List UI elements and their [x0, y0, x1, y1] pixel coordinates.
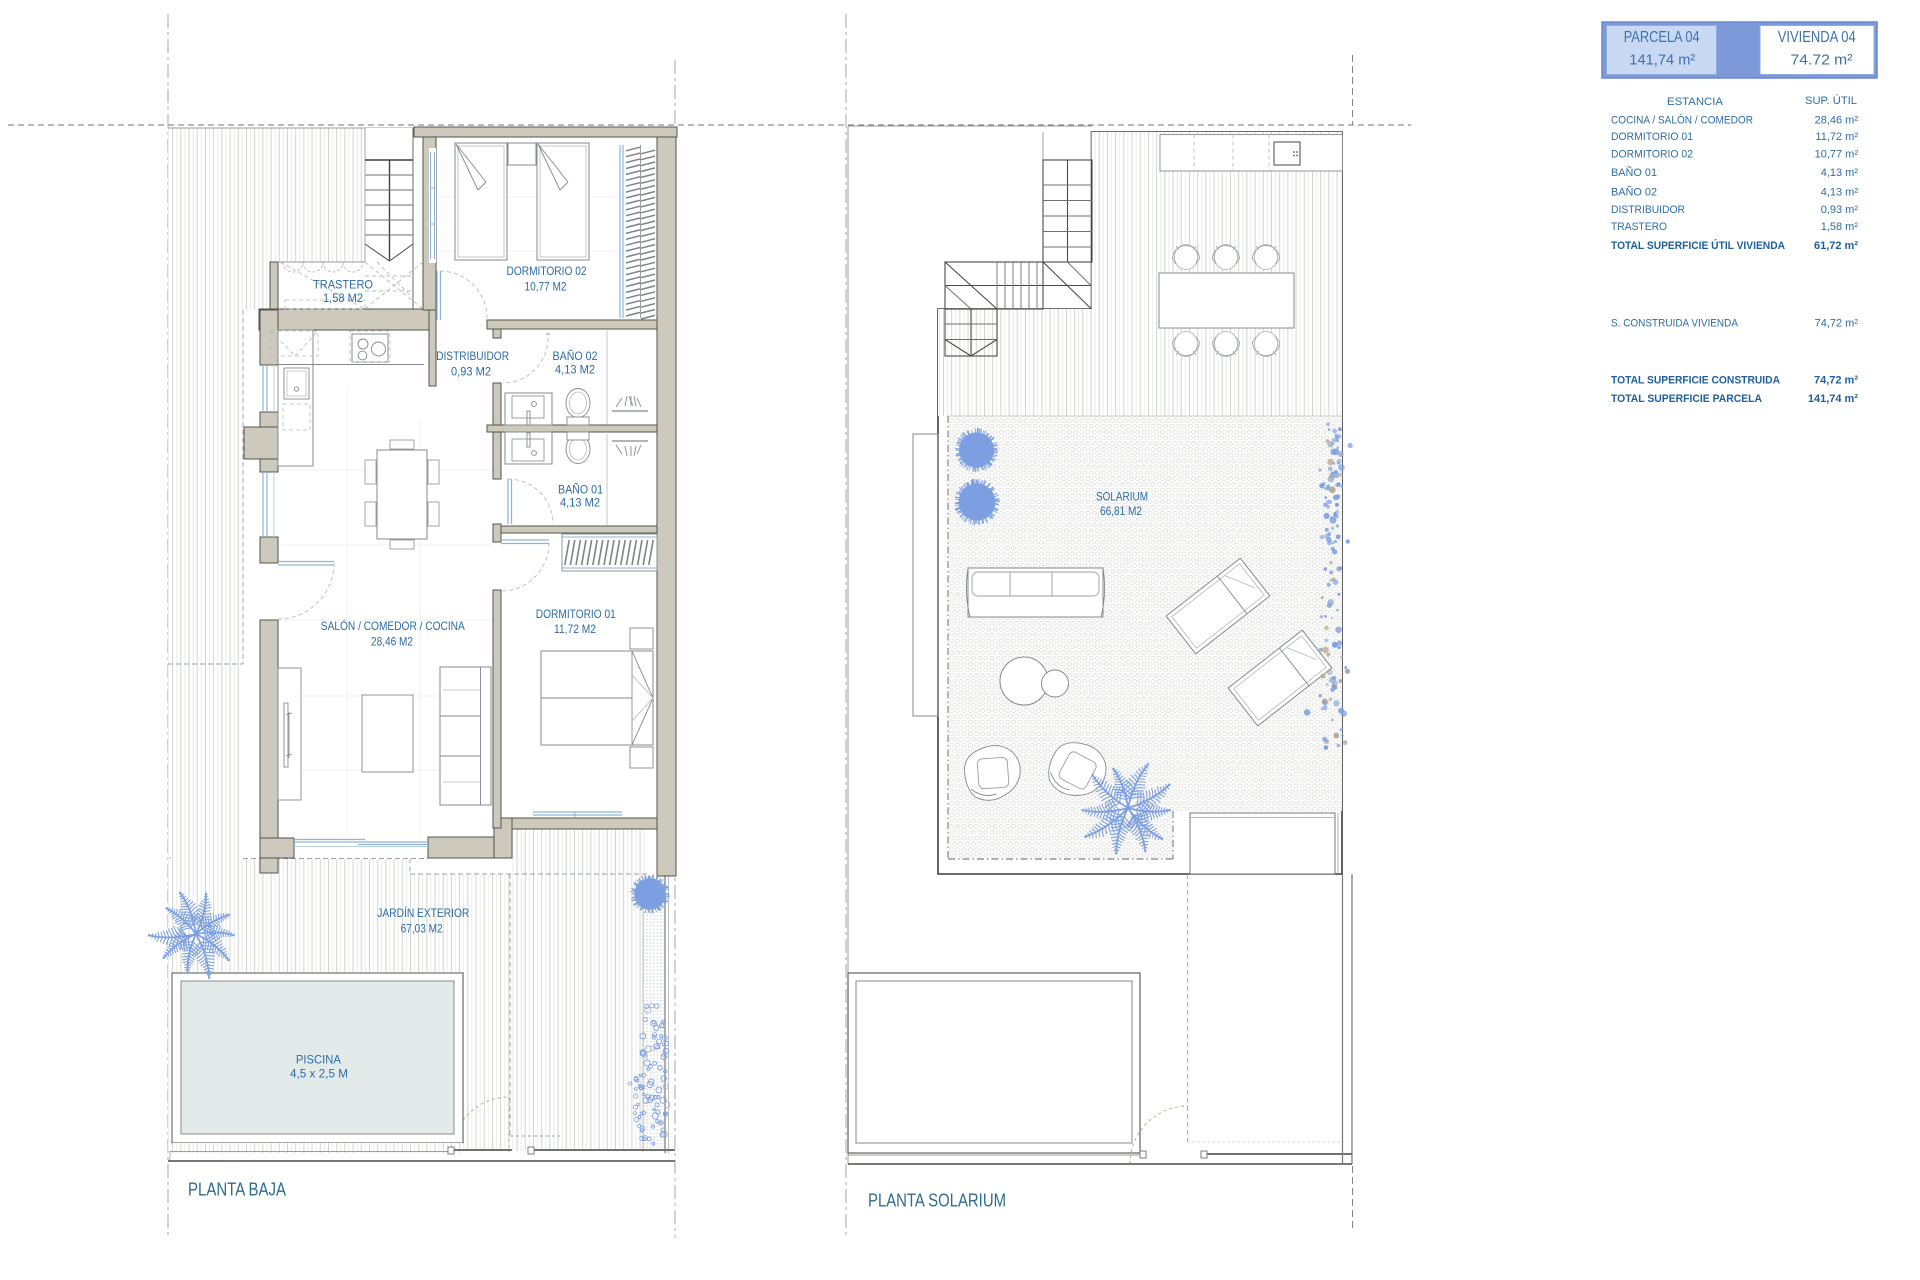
- svg-text:BAÑO 02: BAÑO 02: [553, 349, 598, 363]
- svg-text:VIVIENDA 04: VIVIENDA 04: [1778, 29, 1856, 46]
- svg-text:BAÑO 01: BAÑO 01: [558, 482, 603, 496]
- svg-text:TOTAL SUPERFICIE ÚTIL VIVIENDA: TOTAL SUPERFICIE ÚTIL VIVIENDA: [1611, 239, 1785, 252]
- svg-text:61,72 m²: 61,72 m²: [1814, 240, 1858, 252]
- svg-text:S. CONSTRUIDA VIVIENDA: S. CONSTRUIDA VIVIENDA: [1611, 318, 1739, 330]
- svg-text:0,93 M2: 0,93 M2: [451, 364, 491, 378]
- svg-text:0,93 m²: 0,93 m²: [1821, 204, 1859, 216]
- svg-text:4,13 M2: 4,13 M2: [560, 496, 600, 510]
- svg-text:4,13 m²: 4,13 m²: [1821, 186, 1859, 198]
- svg-text:PISCINA: PISCINA: [296, 1053, 341, 1067]
- svg-text:4,13 M2: 4,13 M2: [555, 363, 595, 377]
- svg-text:DORMITORIO 01: DORMITORIO 01: [1611, 131, 1693, 143]
- svg-text:1,58 m²: 1,58 m²: [1821, 221, 1859, 233]
- svg-text:4,13 m²: 4,13 m²: [1821, 167, 1859, 179]
- svg-text:BAÑO 01: BAÑO 01: [1611, 166, 1657, 179]
- svg-text:TRASTERO: TRASTERO: [1611, 221, 1667, 233]
- svg-text:DISTRIBUIDOR: DISTRIBUIDOR: [1611, 204, 1685, 216]
- svg-text:DORMITORIO 02: DORMITORIO 02: [507, 264, 587, 278]
- svg-text:SUP. ÚTIL: SUP. ÚTIL: [1805, 94, 1857, 107]
- svg-text:BAÑO 02: BAÑO 02: [1611, 185, 1657, 198]
- svg-text:PLANTA BAJA: PLANTA BAJA: [188, 1179, 287, 1200]
- svg-text:10,77 M2: 10,77 M2: [525, 279, 567, 293]
- svg-text:DISTRIBUIDOR: DISTRIBUIDOR: [436, 349, 509, 363]
- svg-text:JARDÍN EXTERIOR: JARDÍN EXTERIOR: [377, 905, 469, 920]
- svg-text:TRASTERO: TRASTERO: [313, 278, 373, 292]
- svg-text:11,72 M2: 11,72 M2: [554, 622, 596, 636]
- svg-text:SOLARIUM: SOLARIUM: [1096, 489, 1148, 503]
- svg-text:PARCELA 04: PARCELA 04: [1624, 29, 1700, 46]
- svg-text:74,72 m²: 74,72 m²: [1814, 374, 1858, 386]
- svg-text:28,46 M2: 28,46 M2: [371, 634, 413, 648]
- svg-text:TOTAL SUPERFICIE CONSTRUIDA: TOTAL SUPERFICIE CONSTRUIDA: [1611, 374, 1780, 386]
- svg-text:67,03 M2: 67,03 M2: [401, 921, 443, 935]
- svg-text:DORMITORIO 02: DORMITORIO 02: [1611, 149, 1693, 161]
- svg-text:4,5 x 2,5 M: 4,5 x 2,5 M: [290, 1067, 348, 1081]
- svg-text:74,72 m²: 74,72 m²: [1815, 318, 1859, 330]
- svg-text:74.72 m²: 74.72 m²: [1791, 52, 1853, 69]
- svg-text:1,58 M2: 1,58 M2: [323, 291, 363, 305]
- svg-text:141,74 m²: 141,74 m²: [1629, 52, 1695, 69]
- svg-text:TOTAL SUPERFICIE PARCELA: TOTAL SUPERFICIE PARCELA: [1611, 393, 1762, 405]
- svg-text:11,72 m²: 11,72 m²: [1815, 131, 1858, 143]
- svg-text:ESTANCIA: ESTANCIA: [1667, 96, 1724, 108]
- svg-text:PLANTA SOLARIUM: PLANTA SOLARIUM: [868, 1190, 1006, 1211]
- svg-text:10,77 m²: 10,77 m²: [1815, 149, 1859, 161]
- svg-text:28,46 m²: 28,46 m²: [1815, 115, 1859, 127]
- svg-text:DORMITORIO 01: DORMITORIO 01: [536, 607, 616, 621]
- svg-text:SALÓN / COMEDOR / COCINA: SALÓN / COMEDOR / COCINA: [321, 618, 465, 633]
- svg-text:COCINA / SALÓN / COMEDOR: COCINA / SALÓN / COMEDOR: [1611, 114, 1753, 127]
- svg-text:66,81 M2: 66,81 M2: [1100, 504, 1142, 518]
- svg-text:141,74 m²: 141,74 m²: [1808, 393, 1858, 405]
